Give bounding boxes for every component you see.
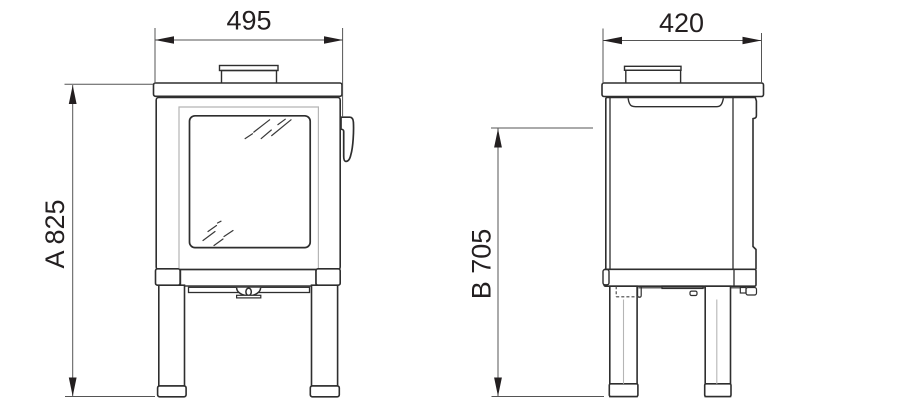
svg-text:420: 420 (659, 8, 704, 38)
svg-text:A 825: A 825 (40, 199, 70, 268)
svg-text:B 705: B 705 (467, 229, 497, 300)
svg-text:495: 495 (226, 6, 271, 36)
